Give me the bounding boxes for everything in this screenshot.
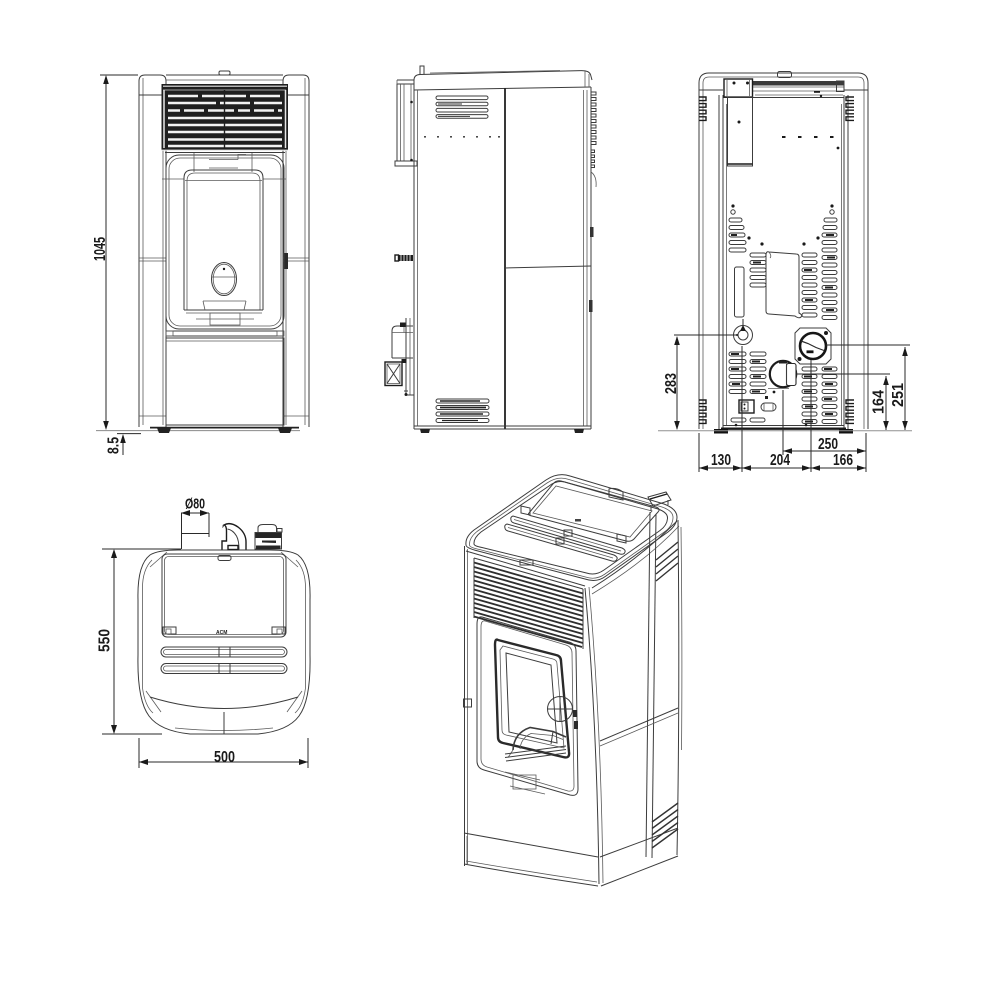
svg-text:250: 250 bbox=[818, 436, 838, 453]
svg-text:283: 283 bbox=[663, 373, 680, 394]
svg-text:8.5: 8.5 bbox=[106, 437, 123, 454]
svg-text:251: 251 bbox=[890, 383, 907, 407]
svg-text:550: 550 bbox=[97, 629, 114, 652]
svg-text:ACM: ACM bbox=[216, 630, 227, 636]
svg-text:166: 166 bbox=[833, 452, 853, 469]
svg-text:1045: 1045 bbox=[92, 237, 109, 261]
svg-text:204: 204 bbox=[770, 452, 790, 469]
svg-text:130: 130 bbox=[711, 452, 731, 469]
svg-text:500: 500 bbox=[214, 749, 235, 766]
svg-text:164: 164 bbox=[871, 390, 888, 414]
svg-text:Ø80: Ø80 bbox=[185, 496, 205, 513]
